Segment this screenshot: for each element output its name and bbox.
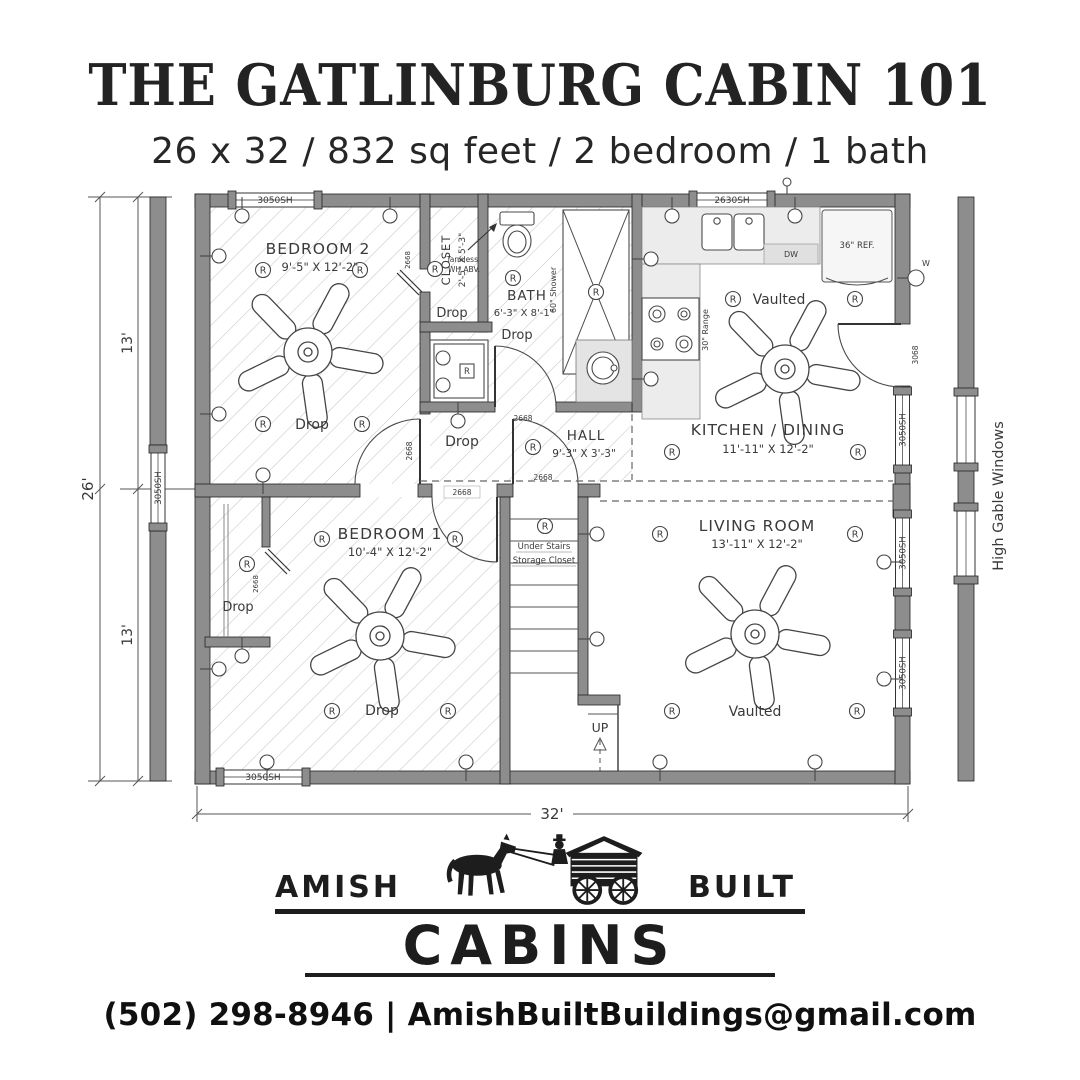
bath-name: BATH (507, 288, 547, 304)
window-label: 2630SH (714, 196, 749, 206)
bedroom2-drop: Drop (295, 417, 329, 433)
dim-lower: 13' (120, 624, 136, 646)
door-label: 2668 (252, 575, 260, 593)
logo-svg: AMISH BUILT (220, 833, 860, 983)
kitchen-name: KITCHEN / DINING (691, 421, 846, 439)
dim-overall-width: 32' (540, 805, 563, 823)
logo-built: BUILT (688, 870, 796, 905)
email-address: AmishBuiltBuildings@gmail.com (408, 997, 977, 1033)
horse-and-buggy-icon (447, 834, 643, 905)
door-label: 3068 (911, 345, 920, 364)
living-side-window-2 (894, 630, 912, 716)
bath-size: 6'-3" X 8'-1" (494, 308, 555, 319)
understairs-label-2: Storage Closet (513, 556, 576, 566)
toilet-tank (500, 212, 534, 225)
closet-name: CLOSET (439, 235, 453, 286)
bedroom1-window (216, 768, 310, 786)
kitchen-vaulted: Vaulted (753, 292, 806, 308)
logo-amish: AMISH (275, 870, 401, 905)
hall-size: 9'-3" X 3'-3" (552, 448, 616, 460)
bedroom1-name: BEDROOM 1 (338, 525, 443, 543)
door-label: 2668 (513, 414, 532, 423)
logo: AMISH BUILT (0, 833, 1080, 987)
contact-info: (502) 298-8946 | AmishBuiltBuildings@gma… (0, 997, 1080, 1033)
refrigerator-label: 36" REF. (840, 241, 875, 251)
range (642, 298, 699, 360)
toilet (503, 225, 531, 257)
kitchen-size: 11'-11" X 12'-2" (722, 442, 814, 456)
page-subtitle: 26 x 32 / 832 sq feet / 2 bedroom / 1 ba… (0, 131, 1080, 172)
left-gable-window (149, 445, 167, 531)
up-label: UP (592, 720, 609, 735)
kitchen-window: 2630SH (689, 191, 775, 209)
floor-plan-svg: R 3050SH 3050SH (0, 174, 1080, 829)
header: THE GATLINBURG CABIN 101 26 x 32 / 832 s… (0, 0, 1080, 172)
hall-name: HALL (567, 428, 605, 444)
wagon-wheel-icon (572, 875, 602, 905)
dim-overall-depth: 26' (79, 477, 97, 500)
page-title: THE GATLINBURG CABIN 101 (54, 52, 1026, 119)
living-name: LIVING ROOM (699, 517, 815, 535)
closet-size: 2'-5" X 5'-3" (458, 233, 468, 288)
ceiling-fixture-symbol (783, 178, 791, 194)
range-label: 30" Range (701, 309, 710, 351)
bedroom1-size: 10'-4" X 12'-2" (348, 545, 432, 559)
high-gable-windows-label: High Gable Windows (991, 421, 1007, 571)
stairs: Under Stairs Storage Closet UP (510, 519, 618, 774)
shower-label: 60" Shower (549, 266, 558, 313)
left-gable-wall (149, 197, 167, 781)
dishwasher-label: DW (784, 250, 798, 259)
closet-drop: Drop (436, 306, 467, 321)
understairs-label-1: Under Stairs (518, 542, 571, 552)
bedroom1-drop: Drop (365, 703, 399, 719)
floor-plan: R 3050SH 3050SH (0, 174, 1080, 833)
bath-vanity (430, 340, 488, 402)
living-vaulted: Vaulted (729, 704, 782, 720)
bedroom2-name: BEDROOM 2 (266, 240, 371, 258)
hall-drop: Drop (445, 434, 479, 450)
bedroom1-closet-drop: Drop (222, 600, 253, 615)
receptacle-label: R (464, 367, 470, 377)
bedroom2-size: 9'-5" X 12'-2" (282, 260, 359, 274)
ceiling-fan-living (682, 562, 831, 710)
separator: | (385, 997, 397, 1033)
kitchen-side-window (894, 387, 912, 473)
living-size: 13'-11" X 12'-2" (711, 537, 803, 551)
wagon-wheel-icon (608, 875, 638, 905)
dim-upper: 13' (120, 332, 136, 354)
logo-rule-bottom (305, 973, 775, 977)
living-side-window (894, 510, 912, 596)
phone-number: (502) 298-8946 (104, 997, 375, 1033)
logo-cabins: CABINS (403, 914, 678, 977)
door-label: 2668 (405, 441, 414, 460)
door-label: 2668 (404, 251, 412, 269)
right-gable-wall (954, 197, 978, 781)
water-label: W (922, 259, 930, 268)
door-label: 2668 (452, 488, 471, 497)
bath-drop: Drop (501, 328, 532, 343)
